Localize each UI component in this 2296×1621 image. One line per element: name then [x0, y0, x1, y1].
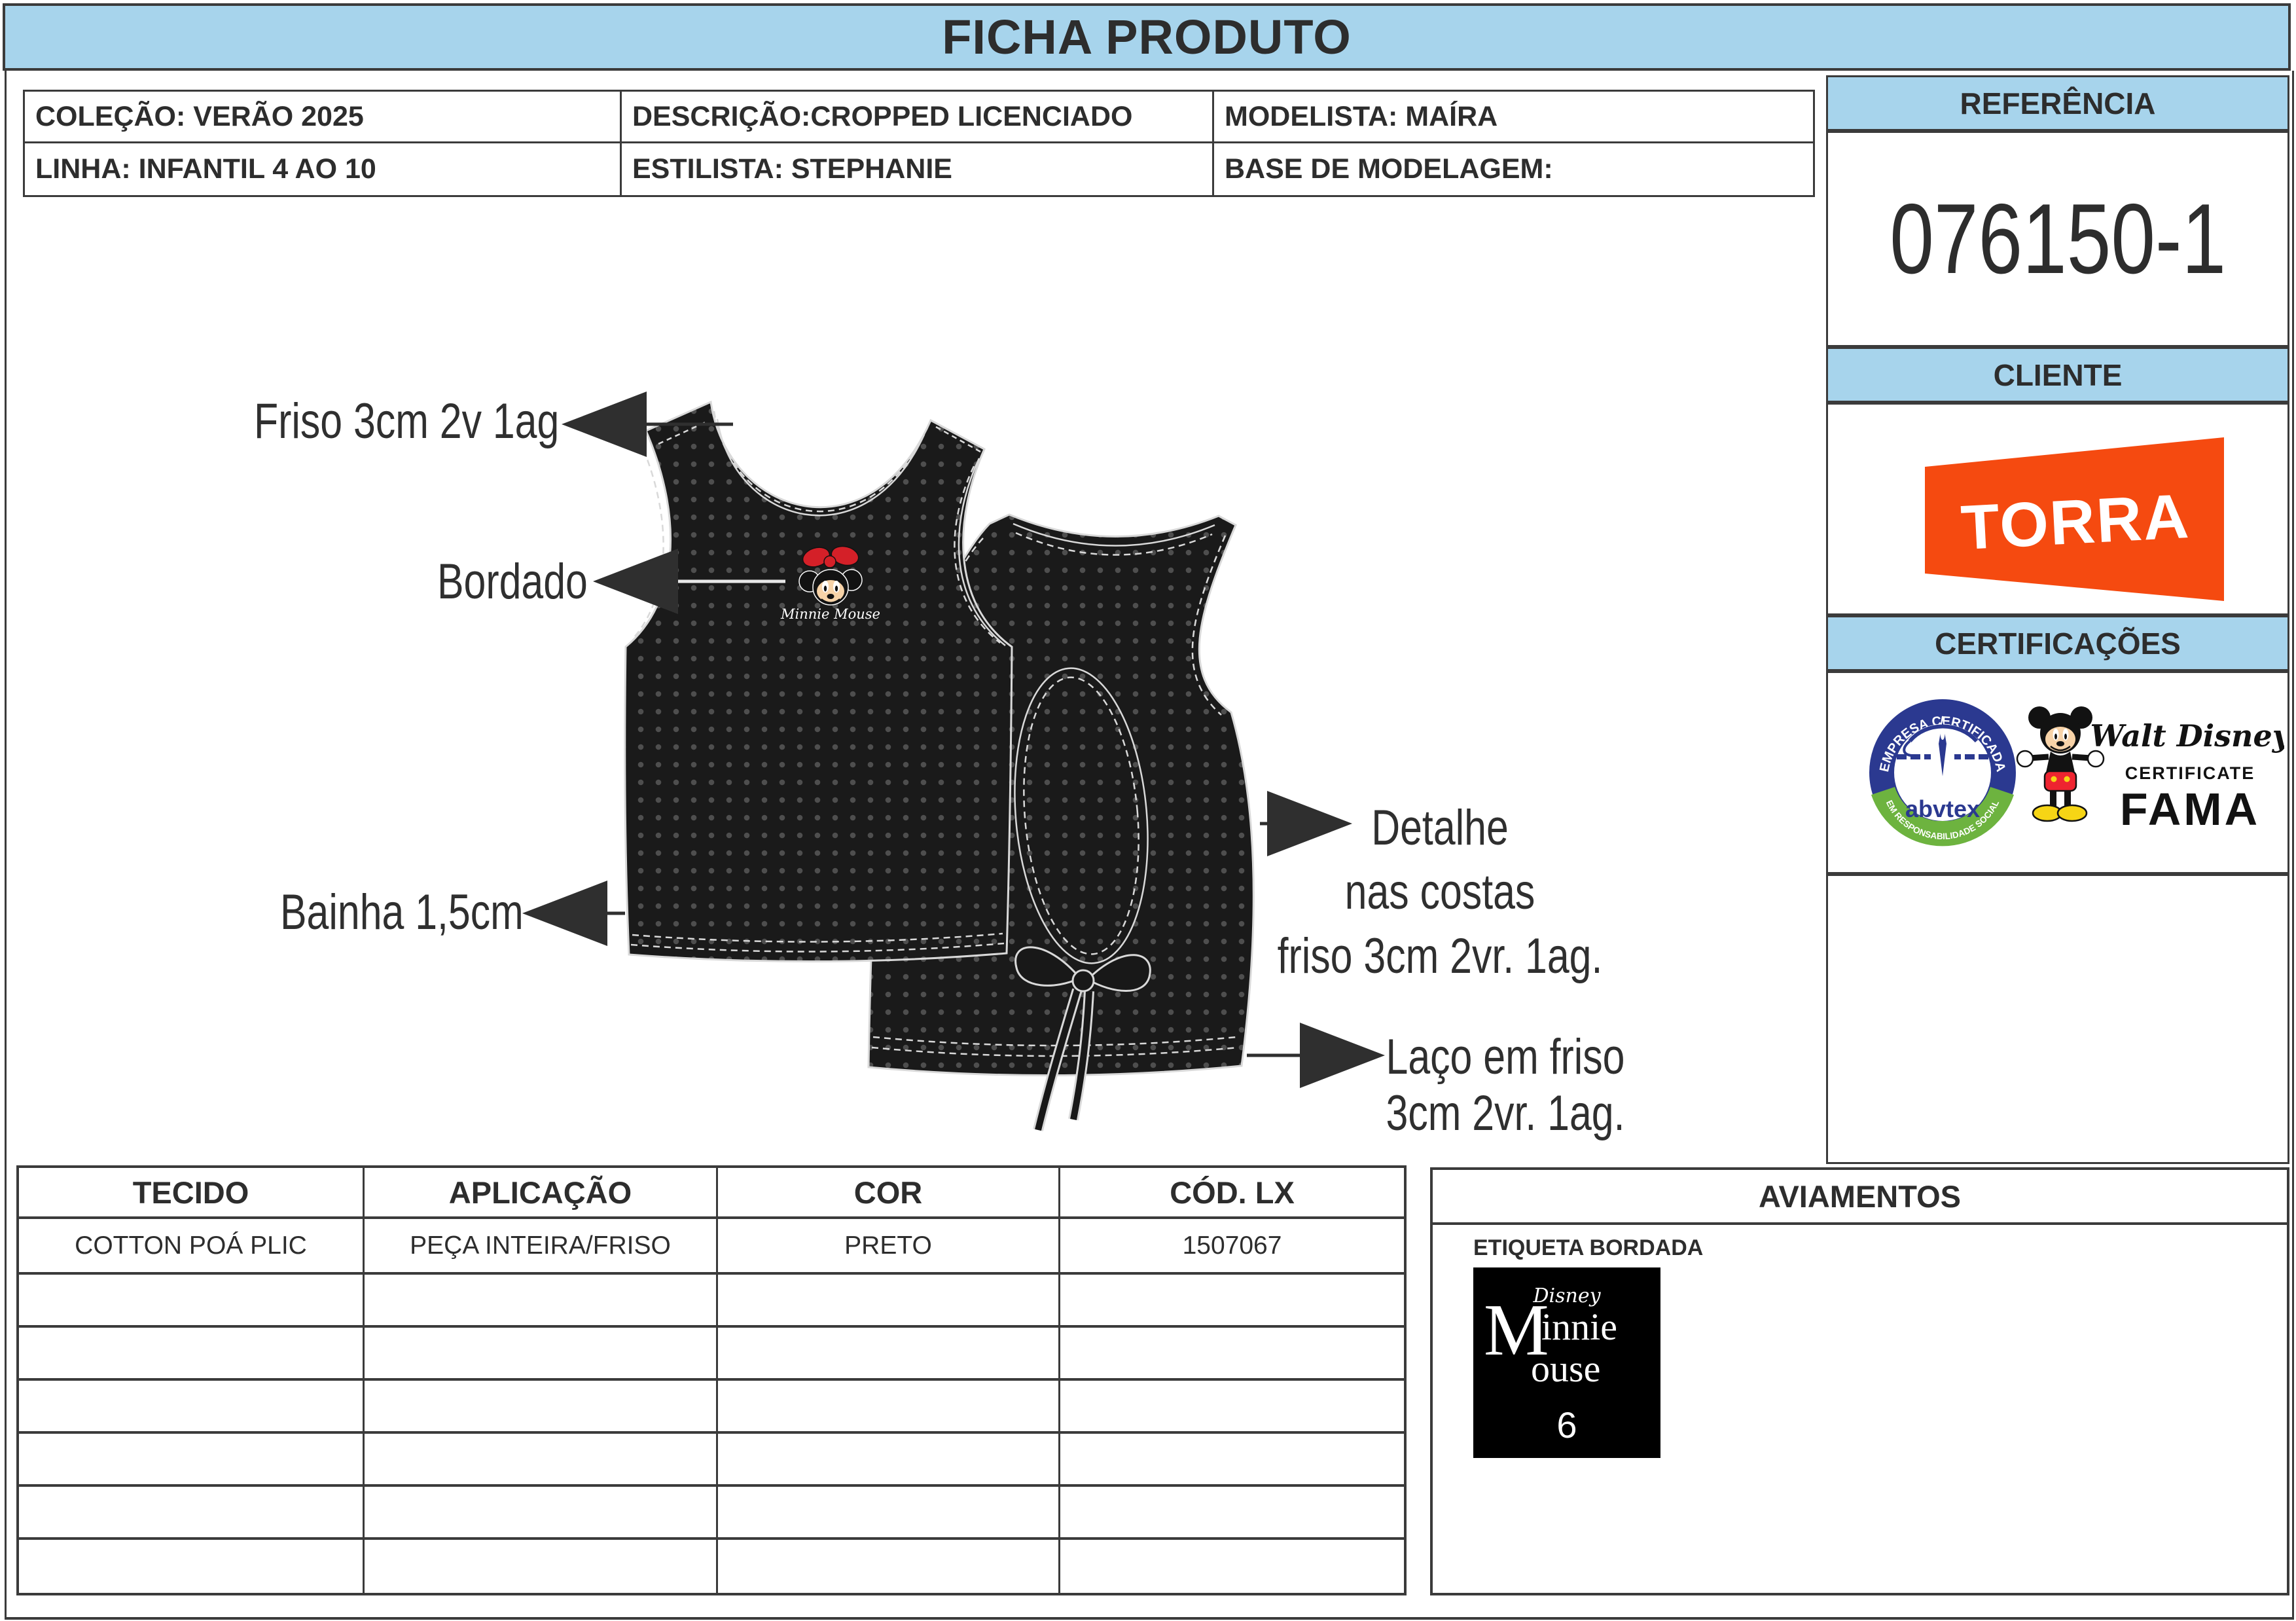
annotation-friso: Friso 3cm 2v 1ag: [254, 393, 559, 450]
table-cell: [1060, 1381, 1404, 1434]
cliente-logo-box: TORRA: [1826, 403, 2289, 615]
aviamentos-title: AVIAMENTOS: [1433, 1170, 2287, 1225]
svg-text:CERTIFICATE: CERTIFICATE: [2125, 763, 2255, 783]
table-cell: [365, 1487, 718, 1540]
table-cell: [365, 1328, 718, 1381]
table-cell: [1060, 1328, 1404, 1381]
annotation-laco: Laço em friso 3cm 2vr. 1ag.: [1359, 1029, 1652, 1142]
table-cell: [19, 1275, 365, 1328]
table-cell: [365, 1381, 718, 1434]
aviamentos-section: AVIAMENTOS ETIQUETA BORDADA Disney M inn…: [1430, 1167, 2289, 1595]
table-cell: [19, 1540, 365, 1593]
field-estilista: ESTILISTA: STEPHANIE: [622, 143, 1214, 195]
label-innie: innie: [1541, 1308, 1617, 1346]
sidebar-empty-box: [1826, 874, 2289, 1164]
table-cell: [718, 1328, 1060, 1381]
table-cell: [365, 1275, 718, 1328]
svg-text:FAMA: FAMA: [2120, 784, 2260, 835]
svg-text:Minnie Mouse: Minnie Mouse: [780, 606, 880, 622]
table-cell: [19, 1487, 365, 1540]
ficha-produto-sheet: FICHA PRODUTO COLEÇÃO: VERÃO 2025 DESCRI…: [0, 0, 2296, 1621]
table-cell: [19, 1328, 365, 1381]
table-cell: [718, 1540, 1060, 1593]
annotation-bainha: Bainha 1,5cm: [280, 884, 524, 941]
table-cell: PRETO: [718, 1219, 1060, 1275]
label-size: 6: [1473, 1404, 1660, 1446]
field-base-modelagem: BASE DE MODELAGEM:: [1214, 143, 1813, 195]
disney-fama-badge-icon: Walt Disney CERTIFICATE FAMA: [2015, 693, 2284, 866]
cliente-header: CLIENTE: [1826, 347, 2289, 403]
referencia-value: 076150-1: [1890, 182, 2226, 297]
table-cell: [1060, 1434, 1404, 1487]
garment-front-view: Minnie Mouse: [625, 402, 1012, 962]
referencia-header: REFERÊNCIA: [1826, 75, 2289, 131]
header-table: COLEÇÃO: VERÃO 2025 DESCRIÇÃO:CROPPED LI…: [23, 90, 1815, 197]
label-ouse: ouse: [1531, 1350, 1600, 1388]
table-cell: [718, 1487, 1060, 1540]
col-aplicacao: APLICAÇÃO: [365, 1168, 718, 1219]
table-cell: [1060, 1275, 1404, 1328]
etiqueta-bordada-label: ETIQUETA BORDADA: [1473, 1235, 1703, 1261]
table-cell: PEÇA INTEIRA/FRISO: [365, 1219, 718, 1275]
materials-table: TECIDO APLICAÇÃO COR CÓD. LX COTTON POÁ …: [16, 1165, 1407, 1595]
table-cell: 1507067: [1060, 1219, 1404, 1275]
table-cell: [718, 1275, 1060, 1328]
field-modelista: MODELISTA: MAÍRA: [1214, 92, 1813, 143]
table-cell: [718, 1434, 1060, 1487]
table-cell: [365, 1434, 718, 1487]
referencia-value-box: 076150-1: [1826, 131, 2289, 347]
svg-text:TORRA: TORRA: [1960, 481, 2192, 563]
annotation-detalhe: Detalhe nas costas friso 3cm 2vr. 1ag.: [1257, 796, 1623, 989]
table-cell: [19, 1434, 365, 1487]
certificacoes-box: EMPRESA CERTIFICADA EM RESPONSABILIDADE …: [1826, 671, 2289, 874]
svg-text:abvtex: abvtex: [1905, 795, 1980, 822]
table-cell: COTTON POÁ PLIC: [19, 1219, 365, 1275]
certificacoes-header: CERTIFICAÇÕES: [1826, 615, 2289, 671]
minnie-mouse-label: Disney M innie ouse 6: [1473, 1267, 1660, 1458]
svg-text:Walt Disney: Walt Disney: [2090, 718, 2284, 754]
page-title: FICHA PRODUTO: [3, 3, 2291, 71]
table-cell: [1060, 1487, 1404, 1540]
table-cell: [718, 1381, 1060, 1434]
annotation-bordado: Bordado: [437, 553, 588, 610]
torra-logo: TORRA: [1828, 405, 2287, 613]
table-cell: [19, 1381, 365, 1434]
col-cod-lx: CÓD. LX: [1060, 1168, 1404, 1219]
field-descricao: DESCRIÇÃO:CROPPED LICENCIADO: [622, 92, 1214, 143]
table-cell: [365, 1540, 718, 1593]
field-colecao: COLEÇÃO: VERÃO 2025: [25, 92, 622, 143]
abvtex-badge-icon: EMPRESA CERTIFICADA EM RESPONSABILIDADE …: [1864, 681, 2021, 867]
col-tecido: TECIDO: [19, 1168, 365, 1219]
table-cell: [1060, 1540, 1404, 1593]
field-linha: LINHA: INFANTIL 4 AO 10: [25, 143, 622, 195]
col-cor: COR: [718, 1168, 1060, 1219]
